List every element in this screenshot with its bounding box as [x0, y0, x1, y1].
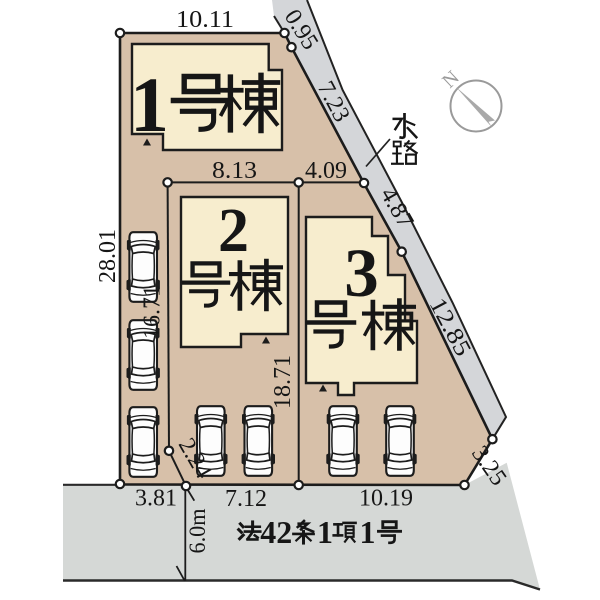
svg-text:3.81: 3.81 [135, 486, 177, 512]
svg-text:16.71: 16.71 [140, 285, 166, 339]
svg-text:7.12: 7.12 [225, 486, 267, 512]
svg-text:18.71: 18.71 [270, 355, 296, 409]
svg-text:2: 2 [218, 197, 249, 265]
svg-text:6.0m: 6.0m [185, 508, 210, 553]
svg-text:10.19: 10.19 [359, 486, 413, 512]
svg-text:1: 1 [130, 61, 169, 148]
svg-text:1: 1 [317, 514, 333, 550]
svg-text:28.01: 28.01 [95, 229, 121, 283]
svg-text:3: 3 [344, 235, 379, 311]
svg-text:10.11: 10.11 [176, 7, 234, 33]
svg-text:8.13: 8.13 [212, 158, 257, 184]
svg-text:42: 42 [260, 514, 292, 550]
svg-text:1: 1 [360, 514, 376, 550]
svg-text:4.09: 4.09 [305, 158, 347, 184]
